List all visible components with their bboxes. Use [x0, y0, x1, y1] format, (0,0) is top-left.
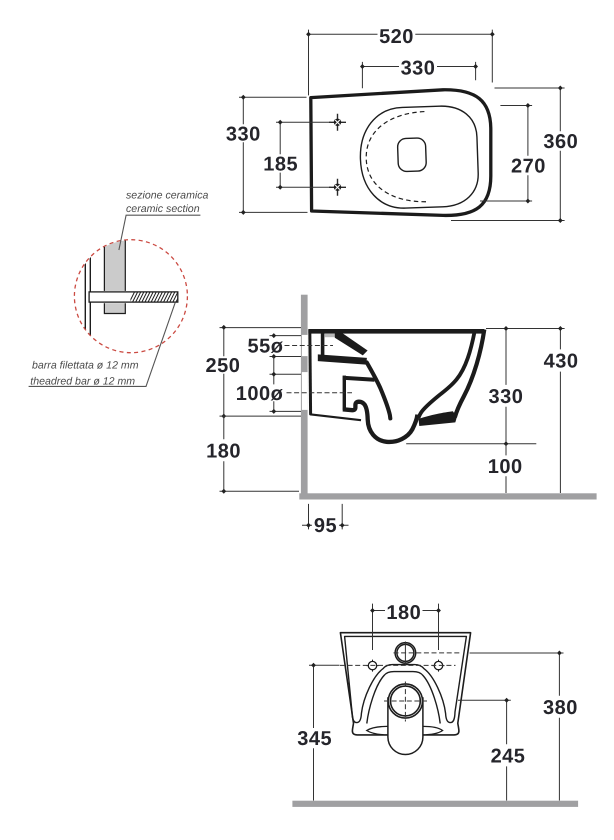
svg-text:95: 95 [314, 515, 337, 537]
svg-text:330: 330 [226, 123, 261, 145]
svg-text:330: 330 [401, 58, 436, 80]
svg-text:520: 520 [379, 26, 414, 48]
svg-text:180: 180 [386, 602, 421, 624]
svg-text:345: 345 [297, 728, 332, 750]
svg-text:100ø: 100ø [236, 383, 284, 405]
svg-text:360: 360 [543, 131, 578, 153]
svg-text:ceramic section: ceramic section [126, 203, 200, 215]
svg-text:180: 180 [206, 441, 241, 463]
svg-text:sezione ceramica: sezione ceramica [126, 189, 209, 201]
svg-text:barra filettata ø 12 mm: barra filettata ø 12 mm [32, 359, 139, 371]
svg-text:250: 250 [205, 355, 240, 377]
svg-text:330: 330 [488, 386, 523, 408]
svg-text:380: 380 [543, 697, 578, 719]
svg-text:430: 430 [544, 351, 579, 373]
svg-text:55ø: 55ø [248, 336, 284, 358]
svg-text:270: 270 [511, 156, 546, 178]
svg-text:100: 100 [488, 456, 523, 478]
svg-text:245: 245 [491, 745, 526, 767]
svg-text:185: 185 [263, 154, 298, 176]
